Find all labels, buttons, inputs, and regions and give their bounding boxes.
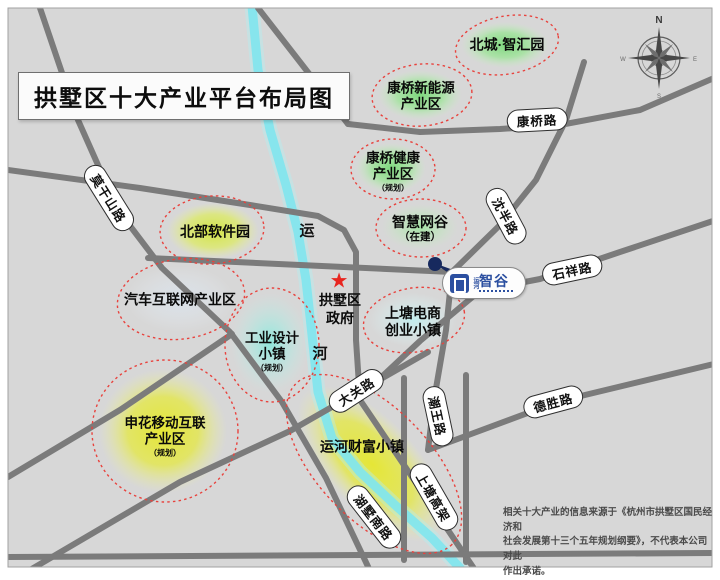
disclaimer: 相关十大产业的信息来源于《杭州市拱墅区国民经济和 社会发展第十三个五年规划纲要》…: [503, 506, 715, 580]
zone-label-kangqiao-health: 康桥健康 产业区 （规划）: [366, 151, 420, 194]
zone-label-auto-internet: 汽车互联网产业区: [124, 291, 236, 308]
map-canvas: N E S W 拱墅区十大产业平台布局图 北城·智汇园 康桥新能源 产业区 康桥…: [0, 0, 720, 575]
zone-label-shangtang-ec: 上塘电商 创业小镇: [385, 305, 441, 339]
zone-label-shenhua: 申花移动互联 产业区 （规划）: [125, 416, 206, 459]
zhigu-logo-prefix: 运河: [472, 277, 478, 289]
river-label-yun: 运: [299, 220, 314, 241]
compass-north-label: N: [655, 15, 662, 26]
title-box: 拱墅区十大产业平台布局图: [18, 72, 350, 120]
zhigu-logo: 运河 智谷: [442, 267, 526, 299]
zone-label-smart-valley: 智慧网谷 （在建）: [392, 214, 448, 244]
smart-valley-marker-dot: [428, 257, 442, 271]
zone-label-north-software: 北部软件园: [180, 223, 250, 240]
government-label: 拱墅区 政府: [319, 292, 361, 327]
zhigu-logo-tagline: [479, 290, 513, 292]
compass-south-label: S: [657, 94, 661, 100]
page-title: 拱墅区十大产业平台布局图: [34, 79, 334, 113]
zone-label-kangqiao-energy: 康桥新能源 产业区: [387, 81, 455, 114]
zhigu-logo-name: 智谷: [479, 274, 513, 288]
road-label-kangqiao: 康桥路: [506, 107, 568, 133]
government-star-icon: ★: [330, 271, 349, 292]
compass-west-label: W: [620, 57, 626, 63]
zhigu-logo-icon: [450, 274, 469, 293]
zone-label-canal-wealth: 运河财富小镇: [320, 438, 404, 455]
compass-east-label: E: [693, 57, 697, 63]
river-label-he: 河: [312, 343, 327, 364]
zone-label-industrial-design: 工业设计 小镇 （规划）: [245, 331, 299, 374]
zone-label-beicheng: 北城·智汇园: [470, 36, 545, 53]
